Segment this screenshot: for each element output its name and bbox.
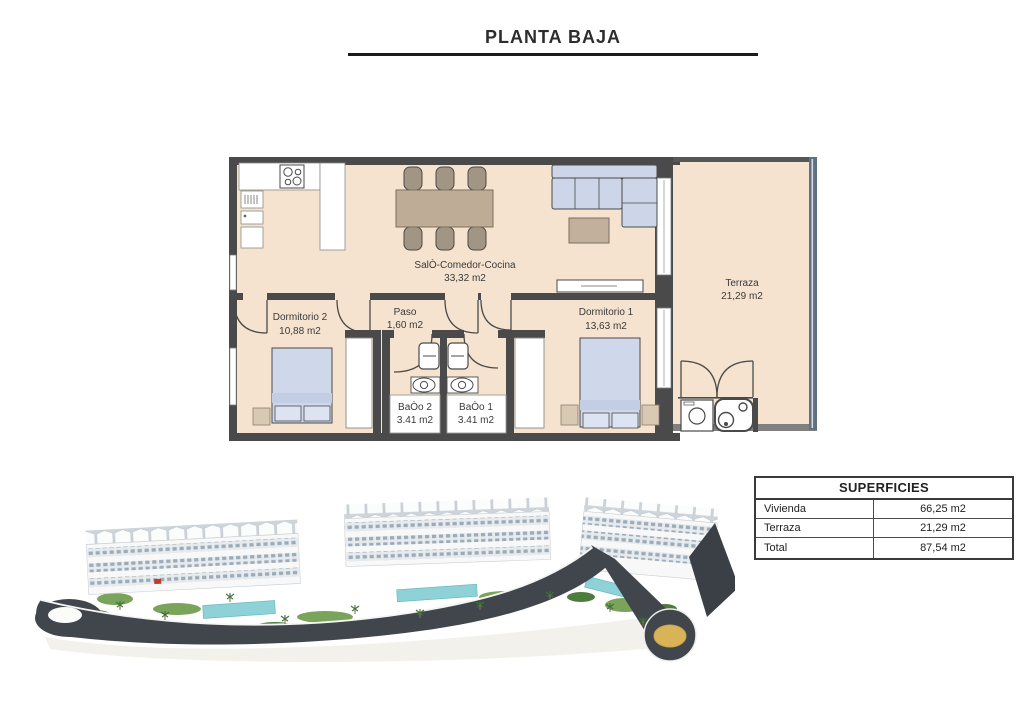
title-underline xyxy=(348,53,758,56)
label-dormitorio1-area: 13,63 m2 xyxy=(585,321,627,332)
table-row: Terraza 21,29 m2 xyxy=(756,519,1012,538)
wardrobe-dormitorio-2 xyxy=(346,338,372,428)
boiler-icon xyxy=(715,399,753,431)
row-value: 66,25 m2 xyxy=(874,500,1012,518)
building-block-center xyxy=(344,497,551,566)
page-title: PLANTA BAJA xyxy=(348,27,758,48)
label-dormitorio2-area: 10,88 m2 xyxy=(279,326,321,337)
wardrobe-dormitorio-1 xyxy=(515,338,544,428)
row-label: Terraza xyxy=(756,519,874,537)
floor-plan: SalÒ-Comedor-Cocina 33,32 m2 Terraza 21,… xyxy=(229,157,824,442)
bed-dormitorio-2 xyxy=(272,348,332,423)
label-dormitorio1-name: Dormitorio 1 xyxy=(579,307,634,318)
label-salon-area: 33,32 m2 xyxy=(444,273,486,284)
table-row: Vivienda 66,25 m2 xyxy=(756,500,1012,519)
label-bano2-area: 3.41 m2 xyxy=(397,415,434,426)
label-dormitorio2-name: Dormitorio 2 xyxy=(273,312,328,323)
page: PLANTA BAJA xyxy=(0,0,1030,719)
table-row: Total 87,54 m2 xyxy=(756,538,1012,558)
row-label: Total xyxy=(756,538,874,558)
label-salon-name: SalÒ-Comedor-Cocina xyxy=(414,258,516,271)
tv-stand xyxy=(557,280,643,292)
roundabout-center xyxy=(654,625,686,647)
washing-machine-icon xyxy=(681,400,713,431)
label-terraza-area: 21,29 m2 xyxy=(721,291,763,302)
label-terraza-name: Terraza xyxy=(725,278,759,289)
aerial-render xyxy=(25,497,735,672)
stove-icon xyxy=(280,165,304,188)
terraza-railing xyxy=(809,157,817,430)
superficies-table: SUPERFICIES Vivienda 66,25 m2 Terraza 21… xyxy=(754,476,1014,560)
red-awning xyxy=(154,579,161,584)
label-bano2-name: BaÒo 2 xyxy=(398,400,432,413)
row-value: 21,29 m2 xyxy=(874,519,1012,537)
bed-dormitorio-1 xyxy=(580,338,640,428)
label-bano1-name: BaÒo 1 xyxy=(459,400,493,413)
nightstand xyxy=(642,405,659,425)
label-paso-area: 1,60 m2 xyxy=(387,320,424,331)
label-bano1-area: 3.41 m2 xyxy=(458,415,495,426)
label-paso-name: Paso xyxy=(394,307,417,318)
coffee-table xyxy=(569,218,609,243)
dining-table xyxy=(396,190,493,227)
superficies-header: SUPERFICIES xyxy=(756,478,1012,500)
nightstand xyxy=(561,405,578,425)
shower-trays xyxy=(390,395,506,433)
building-block-left xyxy=(85,519,300,594)
row-label: Vivienda xyxy=(756,500,874,518)
row-value: 87,54 m2 xyxy=(874,538,1012,558)
nightstand xyxy=(253,408,270,425)
